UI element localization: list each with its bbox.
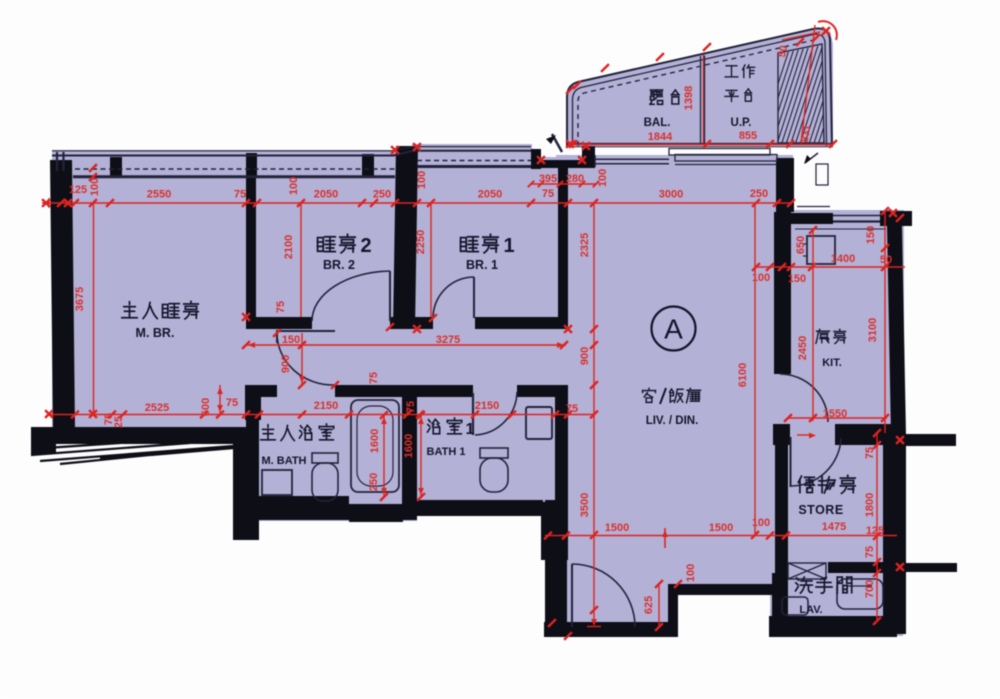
svg-text:1844: 1844 bbox=[648, 131, 673, 143]
svg-text:2325: 2325 bbox=[579, 233, 591, 257]
svg-text:831: 831 bbox=[799, 124, 813, 143]
svg-text:2050: 2050 bbox=[478, 189, 502, 201]
svg-text:3275: 3275 bbox=[436, 334, 460, 346]
svg-text:75: 75 bbox=[864, 546, 876, 558]
svg-text:2250: 2250 bbox=[415, 230, 427, 254]
svg-text:75: 75 bbox=[234, 189, 246, 201]
svg-text:25: 25 bbox=[113, 416, 125, 428]
svg-text:2150: 2150 bbox=[314, 400, 338, 412]
svg-text:75: 75 bbox=[542, 188, 554, 200]
svg-text:700: 700 bbox=[864, 580, 876, 598]
svg-text:1400: 1400 bbox=[831, 253, 855, 265]
svg-text:3100: 3100 bbox=[867, 318, 879, 342]
svg-text:1600: 1600 bbox=[403, 434, 415, 458]
svg-text:50: 50 bbox=[880, 254, 892, 266]
svg-text:250: 250 bbox=[750, 188, 768, 200]
svg-text:100: 100 bbox=[416, 171, 428, 189]
svg-text:75: 75 bbox=[864, 447, 876, 459]
svg-text:M. BATH: M. BATH bbox=[261, 455, 306, 467]
svg-text:100: 100 bbox=[89, 178, 101, 196]
svg-text:75: 75 bbox=[275, 301, 287, 313]
svg-text:BAL.: BAL. bbox=[644, 117, 671, 129]
svg-text:3675: 3675 bbox=[74, 287, 86, 311]
svg-text:855: 855 bbox=[739, 130, 757, 142]
svg-text:A: A bbox=[664, 314, 683, 345]
svg-text:2050: 2050 bbox=[314, 189, 338, 201]
svg-text:STORE: STORE bbox=[798, 503, 843, 517]
svg-text:100: 100 bbox=[685, 564, 697, 582]
svg-text:2100: 2100 bbox=[283, 235, 295, 259]
svg-text:395: 395 bbox=[539, 173, 557, 185]
svg-text:2450: 2450 bbox=[797, 336, 809, 360]
svg-text:600: 600 bbox=[200, 398, 212, 416]
svg-text:150: 150 bbox=[282, 334, 300, 346]
svg-text:75: 75 bbox=[368, 372, 380, 384]
svg-text:100: 100 bbox=[752, 517, 770, 529]
svg-text:1: 1 bbox=[503, 235, 514, 257]
svg-text:1550: 1550 bbox=[823, 408, 847, 420]
svg-text:1398: 1398 bbox=[683, 86, 695, 110]
svg-text:LAV.: LAV. bbox=[799, 604, 822, 616]
svg-text:75: 75 bbox=[566, 403, 578, 415]
svg-text:75: 75 bbox=[405, 401, 417, 413]
svg-text:3000: 3000 bbox=[659, 189, 683, 201]
svg-text:BR. 1: BR. 1 bbox=[466, 258, 498, 272]
svg-text:1800: 1800 bbox=[864, 493, 876, 517]
svg-text:280: 280 bbox=[566, 173, 584, 185]
svg-text:M. BR.: M. BR. bbox=[136, 326, 175, 340]
svg-text:U.P.: U.P. bbox=[731, 117, 752, 129]
svg-text:1600: 1600 bbox=[369, 429, 381, 453]
svg-text:BATH 1: BATH 1 bbox=[427, 446, 466, 458]
svg-text:900: 900 bbox=[280, 355, 292, 373]
svg-text:3500: 3500 bbox=[579, 493, 591, 517]
svg-text:1500: 1500 bbox=[605, 522, 629, 534]
svg-text:100: 100 bbox=[288, 177, 300, 195]
svg-text:LIV. / DIN.: LIV. / DIN. bbox=[646, 415, 699, 427]
svg-text:1475: 1475 bbox=[822, 521, 846, 533]
svg-text:125: 125 bbox=[866, 525, 884, 537]
svg-text:650: 650 bbox=[795, 236, 807, 254]
svg-text:2150: 2150 bbox=[475, 400, 499, 412]
svg-text:2: 2 bbox=[360, 235, 371, 257]
svg-text:75: 75 bbox=[226, 397, 238, 409]
svg-text:625: 625 bbox=[643, 596, 655, 614]
svg-text:150: 150 bbox=[865, 226, 877, 244]
svg-text:KIT.: KIT. bbox=[822, 357, 842, 369]
svg-text:125: 125 bbox=[69, 184, 87, 196]
svg-text:BR. 2: BR. 2 bbox=[323, 258, 355, 272]
svg-text:1500: 1500 bbox=[709, 522, 733, 534]
svg-text:900: 900 bbox=[579, 347, 591, 365]
svg-text:2550: 2550 bbox=[147, 189, 171, 201]
svg-text:1: 1 bbox=[466, 421, 475, 438]
svg-text:250: 250 bbox=[368, 473, 380, 491]
svg-text:250: 250 bbox=[373, 189, 391, 201]
svg-text:6100: 6100 bbox=[737, 363, 749, 387]
svg-text:150: 150 bbox=[788, 273, 806, 285]
svg-text:100: 100 bbox=[597, 169, 609, 187]
svg-text:100: 100 bbox=[752, 272, 770, 284]
svg-text:2525: 2525 bbox=[145, 402, 169, 414]
